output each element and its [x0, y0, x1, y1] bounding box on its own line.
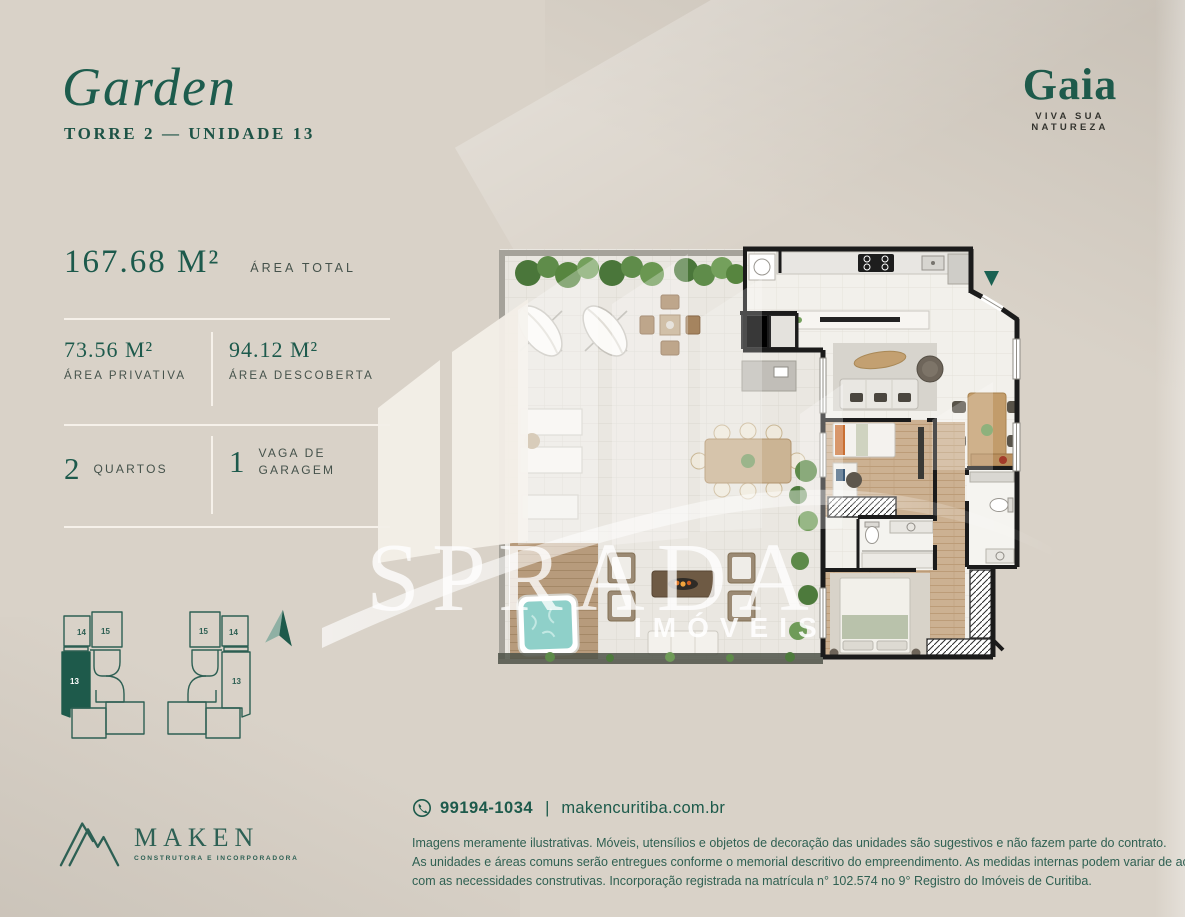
toilet	[866, 527, 879, 544]
master-bedroom	[825, 570, 935, 658]
page-subtitle: TORRE 2 — UNIDADE 13	[64, 124, 315, 144]
area-descoberta: 94.12 M² ÁREA DESCOBERTA	[229, 337, 374, 382]
flyer-canvas: Garden TORRE 2 — UNIDADE 13 Gaia VIVA SU…	[0, 0, 1185, 917]
watermark-tower	[378, 360, 440, 563]
vaga-feature: 1 VAGA DE GARAGEM	[229, 444, 335, 480]
sun-loungers	[520, 409, 582, 519]
contact-website[interactable]: makencuritiba.com.br	[561, 799, 725, 818]
vaga-label-line1: VAGA DE	[259, 445, 336, 462]
shower	[862, 553, 933, 568]
bathroom-2	[967, 470, 1016, 565]
quartos-feature: 2 QUARTOS	[64, 451, 168, 487]
floor-plan	[490, 243, 1022, 683]
area-privativa-value: 73.56 M²	[64, 337, 186, 363]
keyplan-left-unit14-number: 14	[77, 628, 86, 637]
whatsapp-icon	[412, 798, 432, 818]
right-edge-light	[1155, 0, 1185, 917]
key-plan-left: 14 15 13	[62, 612, 144, 738]
desk-chair	[846, 472, 862, 488]
shelf	[918, 427, 924, 479]
divider	[64, 318, 390, 320]
entrance-arrow-icon	[984, 271, 999, 286]
hallway-floor	[933, 422, 965, 657]
north-arrow-icon	[265, 608, 297, 646]
maken-logo: MAKEN CONSTRUTORA E INCORPORADORA	[58, 814, 299, 870]
area-privativa: 73.56 M² ÁREA PRIVATIVA	[64, 337, 186, 382]
washer	[749, 254, 775, 280]
area-privativa-label: ÁREA PRIVATIVA	[64, 370, 186, 382]
divider-vertical	[211, 332, 213, 406]
area-total: 167.68 M² ÁREA TOTAL	[64, 244, 356, 281]
keyplan-left-unit15-number: 15	[101, 627, 110, 636]
stove	[858, 254, 894, 272]
vaga-value: 1	[229, 444, 245, 480]
key-plan-right: 15 14 13	[168, 612, 250, 738]
master-closet	[970, 570, 993, 638]
sink	[986, 549, 1014, 563]
tv-console	[820, 317, 900, 322]
contact-row: 99194-1034 | makencuritiba.com.br	[412, 798, 725, 818]
quartos-label: QUARTOS	[94, 461, 168, 478]
gaia-logo-name: Gaia	[1000, 62, 1140, 108]
console-table	[971, 454, 1015, 466]
keyplan-left-unit13-number: 13	[70, 677, 79, 686]
keyplan-right-unit14-number: 14	[229, 628, 238, 637]
contact-phone[interactable]: 99194-1034	[440, 799, 533, 818]
area-total-value: 167.68 M²	[64, 244, 220, 281]
bedroom-2	[825, 420, 933, 517]
disclaimer-line-3: com as necessidades construtivas. Incorp…	[412, 872, 1185, 891]
divider	[64, 424, 390, 426]
bathroom-1	[858, 519, 935, 570]
disclaimer: Imagens meramente ilustrativas. Móveis, …	[412, 834, 1185, 891]
divider-vertical	[211, 436, 213, 514]
keyplan-right-unit13-number: 13	[232, 677, 241, 686]
disclaimer-line-1: Imagens meramente ilustrativas. Móveis, …	[412, 834, 1185, 853]
gaia-logo-tagline: VIVA SUA NATUREZA	[1000, 111, 1140, 133]
bottom-planter	[498, 652, 823, 664]
disclaimer-line-2: As unidades e áreas comuns serão entregu…	[412, 853, 1185, 872]
keyplan-right-unit15-number: 15	[199, 627, 208, 636]
outdoor-sofa	[648, 631, 718, 655]
area-descoberta-label: ÁREA DESCOBERTA	[229, 370, 374, 382]
area-descoberta-value: 94.12 M²	[229, 337, 374, 363]
contact-separator: |	[545, 799, 549, 818]
mountain-icon	[58, 814, 122, 870]
gaia-logo: Gaia VIVA SUA NATUREZA	[1000, 62, 1140, 133]
maken-logo-tagline: CONSTRUTORA E INCORPORADORA	[134, 855, 299, 862]
page-title: Garden	[62, 56, 237, 118]
pantry-closet	[770, 315, 796, 348]
fridge	[948, 254, 972, 284]
side-table	[524, 433, 540, 449]
area-total-label: ÁREA TOTAL	[250, 261, 356, 275]
vaga-label: VAGA DE GARAGEM	[259, 445, 336, 479]
toilet	[990, 499, 1008, 512]
living-room	[833, 343, 943, 411]
quartos-value: 2	[64, 451, 80, 487]
divider	[64, 526, 390, 528]
master-closet	[927, 639, 993, 655]
vaga-label-line2: GARAGEM	[259, 462, 336, 479]
wardrobe	[828, 497, 896, 517]
maken-logo-name: MAKEN	[134, 823, 299, 853]
jacuzzi	[517, 594, 579, 656]
key-plan-diagrams: 14 15 13 15 14 13	[48, 600, 306, 748]
